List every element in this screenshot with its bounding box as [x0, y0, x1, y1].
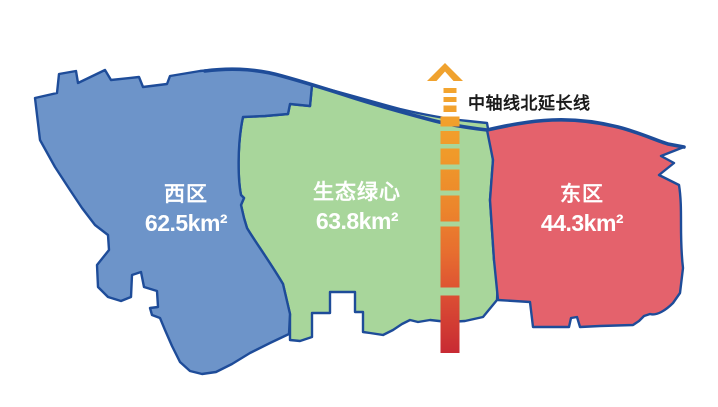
- district-map-infographic: 西区 62.5km² 生态绿心 63.8km² 东区 44.3km² 中轴线北延…: [0, 0, 718, 407]
- map-canvas: [0, 0, 718, 407]
- axis-arrow-up-icon: [427, 63, 463, 81]
- axis-label: 中轴线北延长线: [468, 89, 591, 114]
- region-east: [487, 120, 684, 327]
